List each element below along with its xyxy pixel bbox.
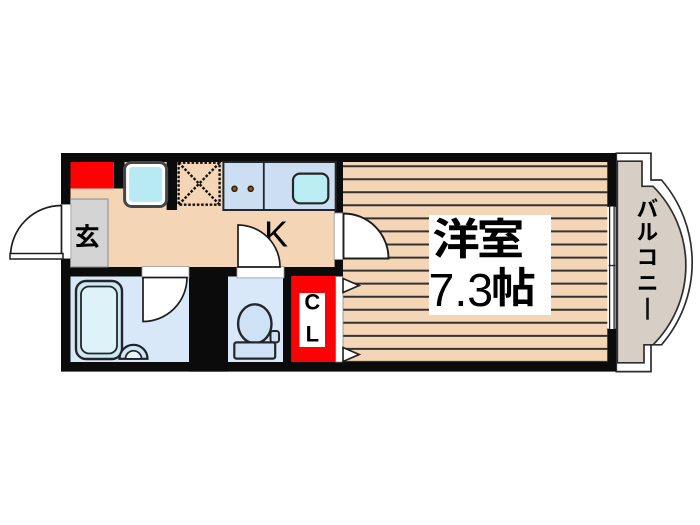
svg-text:L: L xyxy=(306,322,319,347)
svg-text:7.3: 7.3 xyxy=(429,264,494,316)
svg-text:C: C xyxy=(304,290,320,315)
